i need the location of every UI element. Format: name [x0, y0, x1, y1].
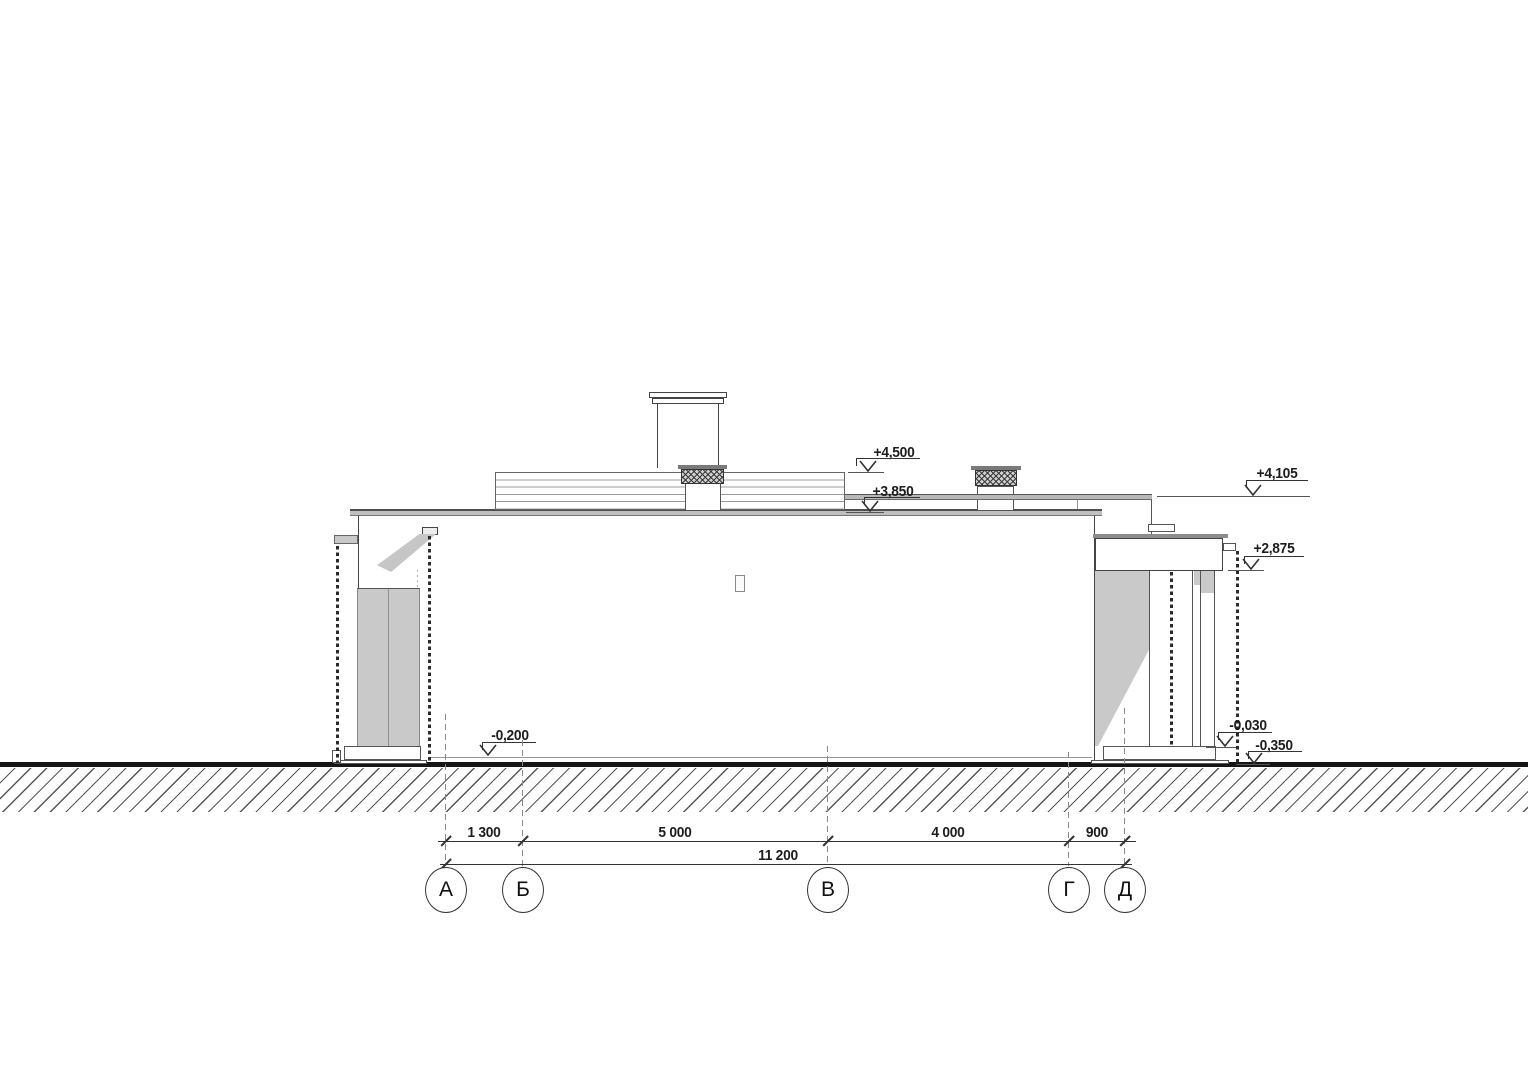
dim-label-bv: 5 000	[647, 824, 702, 841]
wing-roof-joint	[1077, 500, 1078, 509]
roof-vent-grille	[975, 470, 1017, 486]
column-shadow-patch-small	[1194, 571, 1200, 585]
roof-parapet	[495, 472, 845, 510]
facade-wall-lamp	[735, 575, 745, 592]
door-step-upper	[344, 746, 421, 760]
dim-label-total: 11 200	[750, 847, 805, 864]
level-leader	[1206, 747, 1236, 748]
dim-line-row1	[438, 841, 1136, 842]
porch-shadow	[1095, 571, 1149, 746]
rain-chain-left-inner	[428, 536, 431, 763]
level-leader	[848, 472, 884, 473]
elevation-arrow-icon	[1244, 752, 1264, 764]
axis-label: А	[439, 878, 453, 902]
porch-step-upper	[1103, 746, 1216, 760]
level-leader	[1236, 764, 1270, 765]
rain-chain-porch-mid	[1170, 572, 1173, 746]
level-label-2875: +2,875	[1246, 540, 1301, 557]
dim-label-ab: 1 300	[456, 824, 511, 841]
axis-label: Д	[1118, 878, 1132, 902]
elevation-arrow-icon	[1243, 484, 1263, 496]
level-shelf	[1218, 732, 1272, 733]
chimney-vent-grille	[681, 469, 724, 484]
ground-hatch	[0, 768, 1528, 812]
column-shadow-patch	[1201, 571, 1214, 593]
chimney-body	[657, 404, 719, 468]
wall-lamp	[422, 527, 438, 535]
door-leaf-divider	[388, 589, 389, 746]
main-facade-wall	[358, 515, 1095, 762]
porch-canopy	[1095, 538, 1223, 571]
axis-label: В	[821, 878, 835, 902]
elevation-arrow-icon	[1241, 558, 1261, 570]
level-shelf	[1246, 480, 1308, 481]
elevation-arrow-icon	[478, 744, 498, 756]
axis-bubble-d: Д	[1104, 867, 1146, 913]
axis-bubble-g: Г	[1048, 867, 1090, 913]
level-shelf	[482, 742, 536, 743]
level-shelf	[864, 497, 920, 498]
axis-bubble-b: Б	[502, 867, 544, 913]
dim-label-gd: 900	[1069, 824, 1124, 841]
axis-line-g	[1068, 752, 1069, 866]
ground-line	[0, 762, 1528, 767]
elevation-arrow-icon	[1215, 735, 1235, 747]
level-shelf	[1244, 556, 1304, 557]
axis-line-a	[445, 714, 446, 866]
axis-line-b	[522, 740, 523, 866]
elevation-arrow-icon	[860, 500, 880, 512]
level-leader	[1157, 496, 1310, 497]
dim-line-total	[440, 864, 1132, 865]
level-leader	[1228, 570, 1264, 571]
level-shelf	[856, 458, 920, 459]
rain-chain-left-outer	[336, 546, 339, 763]
porch-step-lower	[1091, 760, 1229, 764]
axis-label: Г	[1063, 878, 1074, 902]
wall-ledge	[334, 535, 358, 544]
porch-column-rear	[1200, 571, 1215, 746]
canopy-bracket	[1223, 543, 1236, 551]
elevation-drawing-sheet: +4,500 +3,850 +4,105 +2,875 -0,030 -0,35…	[0, 0, 1528, 1080]
level-leader	[846, 512, 884, 513]
elevation-arrow-icon	[858, 460, 878, 472]
plinth-base-line	[428, 757, 1092, 758]
chimney-shaft	[685, 484, 721, 510]
axis-bubble-a: А	[425, 867, 467, 913]
axis-label: Б	[516, 878, 530, 902]
level-stub	[856, 458, 857, 466]
axis-bubble-v: В	[807, 867, 849, 913]
door-step-lower	[334, 760, 427, 764]
dim-label-vg: 4 000	[920, 824, 975, 841]
porch-beam-end	[1148, 524, 1175, 532]
axis-line-v	[827, 746, 828, 866]
